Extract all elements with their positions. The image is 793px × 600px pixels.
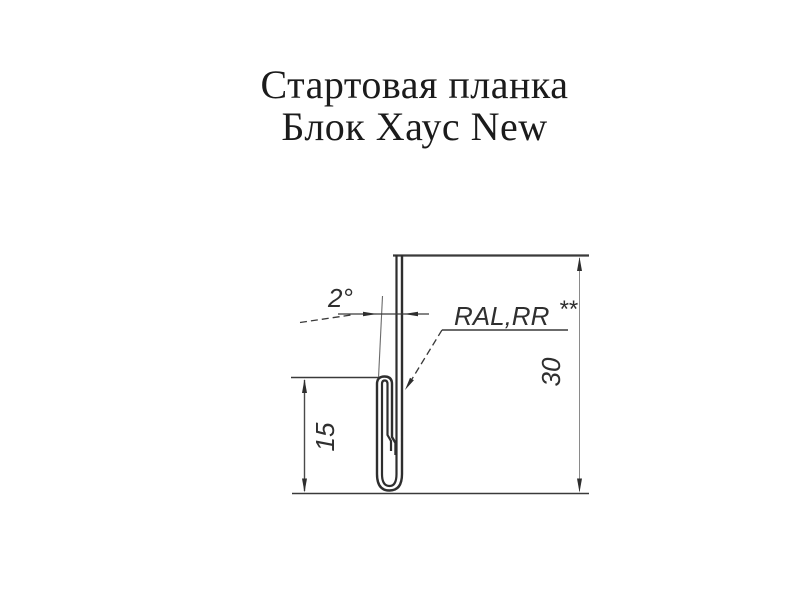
arrowhead-angle-right	[404, 312, 418, 317]
arrowhead-15-top	[302, 379, 307, 393]
angle-reference-line	[379, 296, 383, 378]
profile-drawing: 30 15 2° RAL,RR **	[0, 0, 793, 600]
angle-annotation: 2°	[300, 283, 429, 323]
arrowhead-coating	[405, 378, 414, 390]
profile-section	[377, 255, 402, 491]
angle-leader-dashed	[300, 315, 351, 323]
coating-leader-dashed	[412, 330, 442, 379]
arrowhead-30-bottom	[577, 479, 582, 493]
coating-superscript: **	[559, 296, 578, 323]
dimension-15-value: 15	[310, 422, 340, 451]
dimension-30: 30	[536, 257, 582, 493]
arrowhead-30-top	[577, 257, 582, 271]
arrowhead-angle-left	[363, 312, 377, 317]
drawing-page: Стартовая планка Блок Хаус New 30	[0, 0, 793, 600]
coating-label-text: RAL,RR **	[454, 296, 578, 331]
profile-outer-surface	[377, 255, 402, 491]
arrowhead-15-bottom	[302, 479, 307, 493]
dimension-30-value: 30	[536, 357, 566, 386]
coating-label: RAL,RR	[454, 301, 549, 331]
dimension-15: 15	[302, 379, 340, 493]
angle-value: 2°	[327, 283, 353, 313]
